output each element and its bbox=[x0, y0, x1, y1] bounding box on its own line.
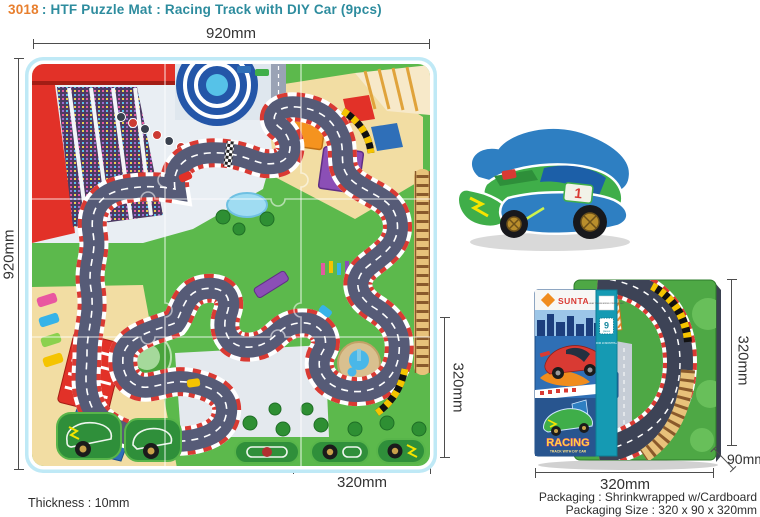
packaging-notes: Packaging : Shrinkwrapped w/Cardboard Pa… bbox=[539, 491, 757, 517]
diy-car-image: 1 bbox=[448, 112, 648, 262]
mat-railway bbox=[414, 169, 431, 375]
tile-width-label: 320mm bbox=[314, 474, 410, 491]
packaging-size-note: Packaging Size : 320 x 90 x 320mm bbox=[539, 504, 757, 517]
box-width-line bbox=[535, 472, 714, 473]
pieces-badge-caption: pieces bbox=[603, 330, 611, 333]
mat-width-label: 920mm bbox=[183, 25, 279, 42]
product-spec-sheet: 3018: HTF Puzzle Mat : Racing Track with… bbox=[0, 0, 760, 517]
car-shadow bbox=[470, 233, 630, 251]
page-title: 3018: HTF Puzzle Mat : Racing Track with… bbox=[8, 2, 382, 17]
sleeve-strip-note: HEAT TRANSFERRED PRINTED MAT bbox=[589, 302, 624, 305]
box-height-line bbox=[731, 279, 732, 446]
box-side-edge bbox=[716, 284, 721, 462]
pieces-badge-number: 9 bbox=[604, 321, 609, 331]
tile-height-label: 320mm bbox=[450, 340, 467, 436]
tile-height-line bbox=[444, 317, 445, 458]
mat-height-line bbox=[18, 58, 19, 470]
brand-name: SUNTA bbox=[558, 296, 589, 306]
packaging-box-image: SUNTA bbox=[532, 274, 724, 472]
mat-pond bbox=[227, 193, 267, 217]
product-name: : HTF Puzzle Mat : Racing Track with DIY… bbox=[42, 2, 382, 17]
puzzle-mat-image bbox=[25, 57, 437, 473]
mat-width-line bbox=[33, 43, 430, 44]
box-sleeve: SUNTA bbox=[535, 290, 625, 456]
sleeve-age-note: FOR 10 MONTHS+ bbox=[596, 342, 617, 345]
box-depth-label: 90mm bbox=[727, 451, 760, 467]
mat-height-label: 920mm bbox=[1, 207, 18, 303]
sleeve-art-title: RACING bbox=[546, 437, 589, 449]
thickness-note: Thickness : 10mm bbox=[28, 496, 129, 510]
sleeve-art-subtitle: TRACK WITH DIY CAR bbox=[550, 450, 587, 454]
car-door-plate: 1 bbox=[563, 183, 593, 204]
box-shadow bbox=[538, 460, 718, 470]
box-height-label: 320mm bbox=[735, 313, 752, 409]
product-code: 3018 bbox=[8, 2, 39, 17]
